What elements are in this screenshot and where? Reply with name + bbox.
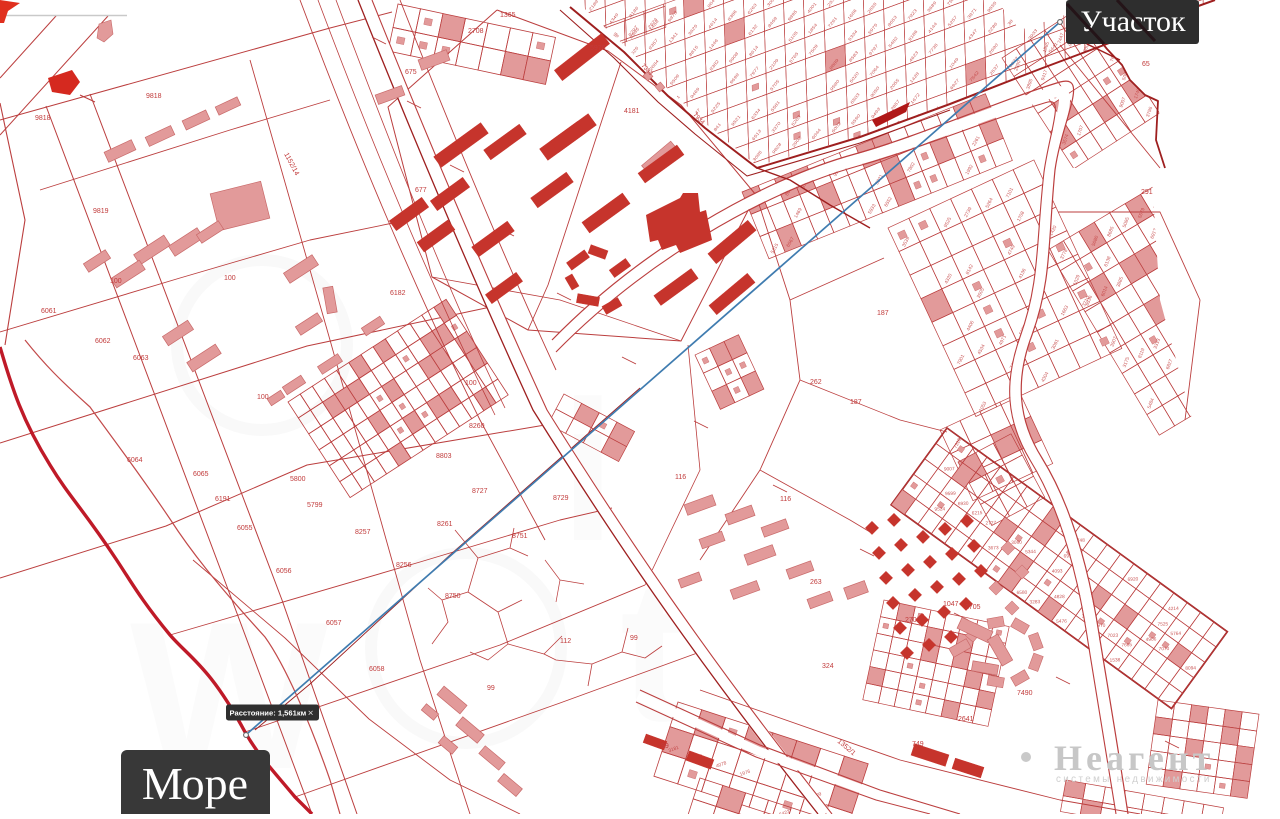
svg-text:262: 262 xyxy=(810,379,822,386)
svg-text:9007: 9007 xyxy=(944,466,955,472)
svg-text:324: 324 xyxy=(822,663,834,670)
svg-text:9818: 9818 xyxy=(35,115,51,122)
svg-text:3673: 3673 xyxy=(988,545,999,551)
svg-text:6191: 6191 xyxy=(215,496,231,503)
svg-text:9599: 9599 xyxy=(945,491,956,497)
svg-text:6065: 6065 xyxy=(193,471,209,478)
svg-text:6064: 6064 xyxy=(127,457,143,464)
svg-text:677: 677 xyxy=(415,187,427,194)
svg-text:99: 99 xyxy=(630,635,638,642)
svg-text:Расстояние: 1,561км: Расстояние: 1,561км xyxy=(230,709,307,718)
svg-text:4181: 4181 xyxy=(624,108,640,115)
svg-text:5344: 5344 xyxy=(1025,549,1036,555)
svg-text:4214: 4214 xyxy=(1168,606,1179,612)
svg-text:7665: 7665 xyxy=(1121,642,1132,648)
svg-text:4906: 4906 xyxy=(1146,637,1157,643)
svg-text:99: 99 xyxy=(487,685,495,692)
svg-text:8257: 8257 xyxy=(355,529,371,536)
svg-text:187: 187 xyxy=(850,399,862,406)
svg-text:5764: 5764 xyxy=(1170,631,1181,637)
svg-text:Участок: Участок xyxy=(1080,5,1186,38)
svg-text:7525: 7525 xyxy=(1157,621,1168,627)
svg-text:1365: 1365 xyxy=(500,12,516,19)
svg-text:291: 291 xyxy=(1141,189,1153,196)
svg-text:8729: 8729 xyxy=(553,495,569,502)
svg-text:2708: 2708 xyxy=(468,28,484,35)
svg-text:5476: 5476 xyxy=(1056,619,1067,625)
svg-text:100: 100 xyxy=(257,394,269,401)
svg-text:675: 675 xyxy=(405,69,417,76)
svg-text:8803: 8803 xyxy=(436,453,452,460)
svg-text:8261: 8261 xyxy=(437,521,453,528)
svg-text:6057: 6057 xyxy=(326,620,342,627)
svg-text:4093: 4093 xyxy=(1052,568,1063,574)
svg-text:9524: 9524 xyxy=(934,506,945,512)
svg-text:100: 100 xyxy=(224,275,236,282)
svg-text:6580: 6580 xyxy=(1016,590,1027,596)
svg-text:9818: 9818 xyxy=(146,93,162,100)
svg-text:✕: ✕ xyxy=(308,709,314,718)
svg-text:8260: 8260 xyxy=(469,423,485,430)
svg-text:2641: 2641 xyxy=(958,716,974,723)
svg-text:8094: 8094 xyxy=(1185,665,1196,671)
svg-text:6215: 6215 xyxy=(972,510,983,516)
svg-text:i: i xyxy=(560,360,616,583)
svg-text:116: 116 xyxy=(675,474,686,481)
svg-text:2727: 2727 xyxy=(985,520,996,526)
svg-text:2705: 2705 xyxy=(965,604,981,611)
svg-text:8750: 8750 xyxy=(445,593,461,600)
svg-text:99: 99 xyxy=(661,743,669,750)
svg-text:7070: 7070 xyxy=(1159,646,1170,652)
svg-text:100: 100 xyxy=(110,278,122,285)
svg-text:3080: 3080 xyxy=(1011,540,1022,546)
svg-text:5976: 5976 xyxy=(590,45,606,52)
svg-text:4828: 4828 xyxy=(1054,594,1065,600)
svg-text:6058: 6058 xyxy=(369,666,385,673)
svg-text:6930: 6930 xyxy=(958,501,969,507)
svg-text:Неагент: Неагент xyxy=(1054,738,1214,778)
svg-text:112: 112 xyxy=(560,638,571,645)
svg-text:187: 187 xyxy=(877,310,889,317)
svg-text:1538: 1538 xyxy=(1110,657,1121,663)
svg-text:7490: 7490 xyxy=(1017,690,1033,697)
svg-text:2706: 2706 xyxy=(905,617,921,624)
svg-text:116: 116 xyxy=(780,496,791,503)
svg-text:1047: 1047 xyxy=(943,601,959,608)
svg-text:6920: 6920 xyxy=(1127,576,1138,582)
svg-text:6182: 6182 xyxy=(390,290,406,297)
svg-text:системы недвижимости: системы недвижимости xyxy=(1056,774,1212,785)
svg-text:7023: 7023 xyxy=(1107,633,1118,639)
svg-text:6055: 6055 xyxy=(237,525,253,532)
svg-text:8256: 8256 xyxy=(396,562,412,569)
svg-text:6063: 6063 xyxy=(133,355,149,362)
svg-text:6056: 6056 xyxy=(276,568,292,575)
svg-text:5800: 5800 xyxy=(290,476,306,483)
svg-text:8727: 8727 xyxy=(472,488,488,495)
svg-text:100: 100 xyxy=(465,380,477,387)
svg-text:8751: 8751 xyxy=(512,533,528,540)
svg-text:6061: 6061 xyxy=(41,308,57,315)
svg-text:6062: 6062 xyxy=(95,338,111,345)
svg-text:65: 65 xyxy=(1142,61,1150,68)
svg-text:Море: Море xyxy=(142,758,248,809)
svg-text:263: 263 xyxy=(810,579,822,586)
svg-text:749: 749 xyxy=(912,741,924,748)
svg-text:5799: 5799 xyxy=(307,502,323,509)
svg-text:9819: 9819 xyxy=(93,208,109,215)
svg-text:3283: 3283 xyxy=(1029,599,1040,605)
